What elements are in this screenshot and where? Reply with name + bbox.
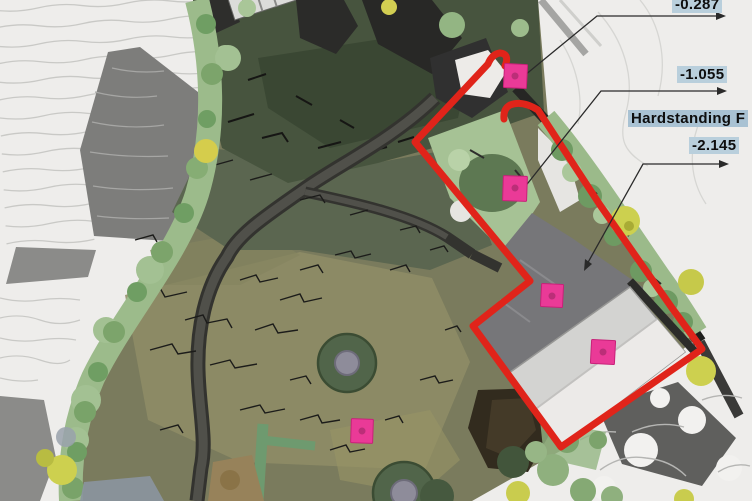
hardstanding-annotation: Hardstanding F xyxy=(628,110,748,127)
site-plan-canvas: -0.287 -1.055 Hardstanding F -2.145 xyxy=(0,0,752,501)
tree-symbol-yellow xyxy=(194,139,218,163)
level-annotation-top: -0.287 xyxy=(672,0,722,13)
survey-marker-1 xyxy=(503,63,527,88)
site-plan-drawing xyxy=(0,0,752,501)
level-annotation-mid: -1.055 xyxy=(677,66,727,83)
survey-marker-3 xyxy=(540,283,563,307)
tree-symbol-round xyxy=(318,334,376,392)
level-annotation-hardstanding: -2.145 xyxy=(689,137,739,154)
tree-symbol-yellow xyxy=(678,269,704,295)
survey-marker-4 xyxy=(590,339,615,364)
survey-marker-5 xyxy=(351,419,374,444)
survey-marker-2 xyxy=(503,176,528,202)
